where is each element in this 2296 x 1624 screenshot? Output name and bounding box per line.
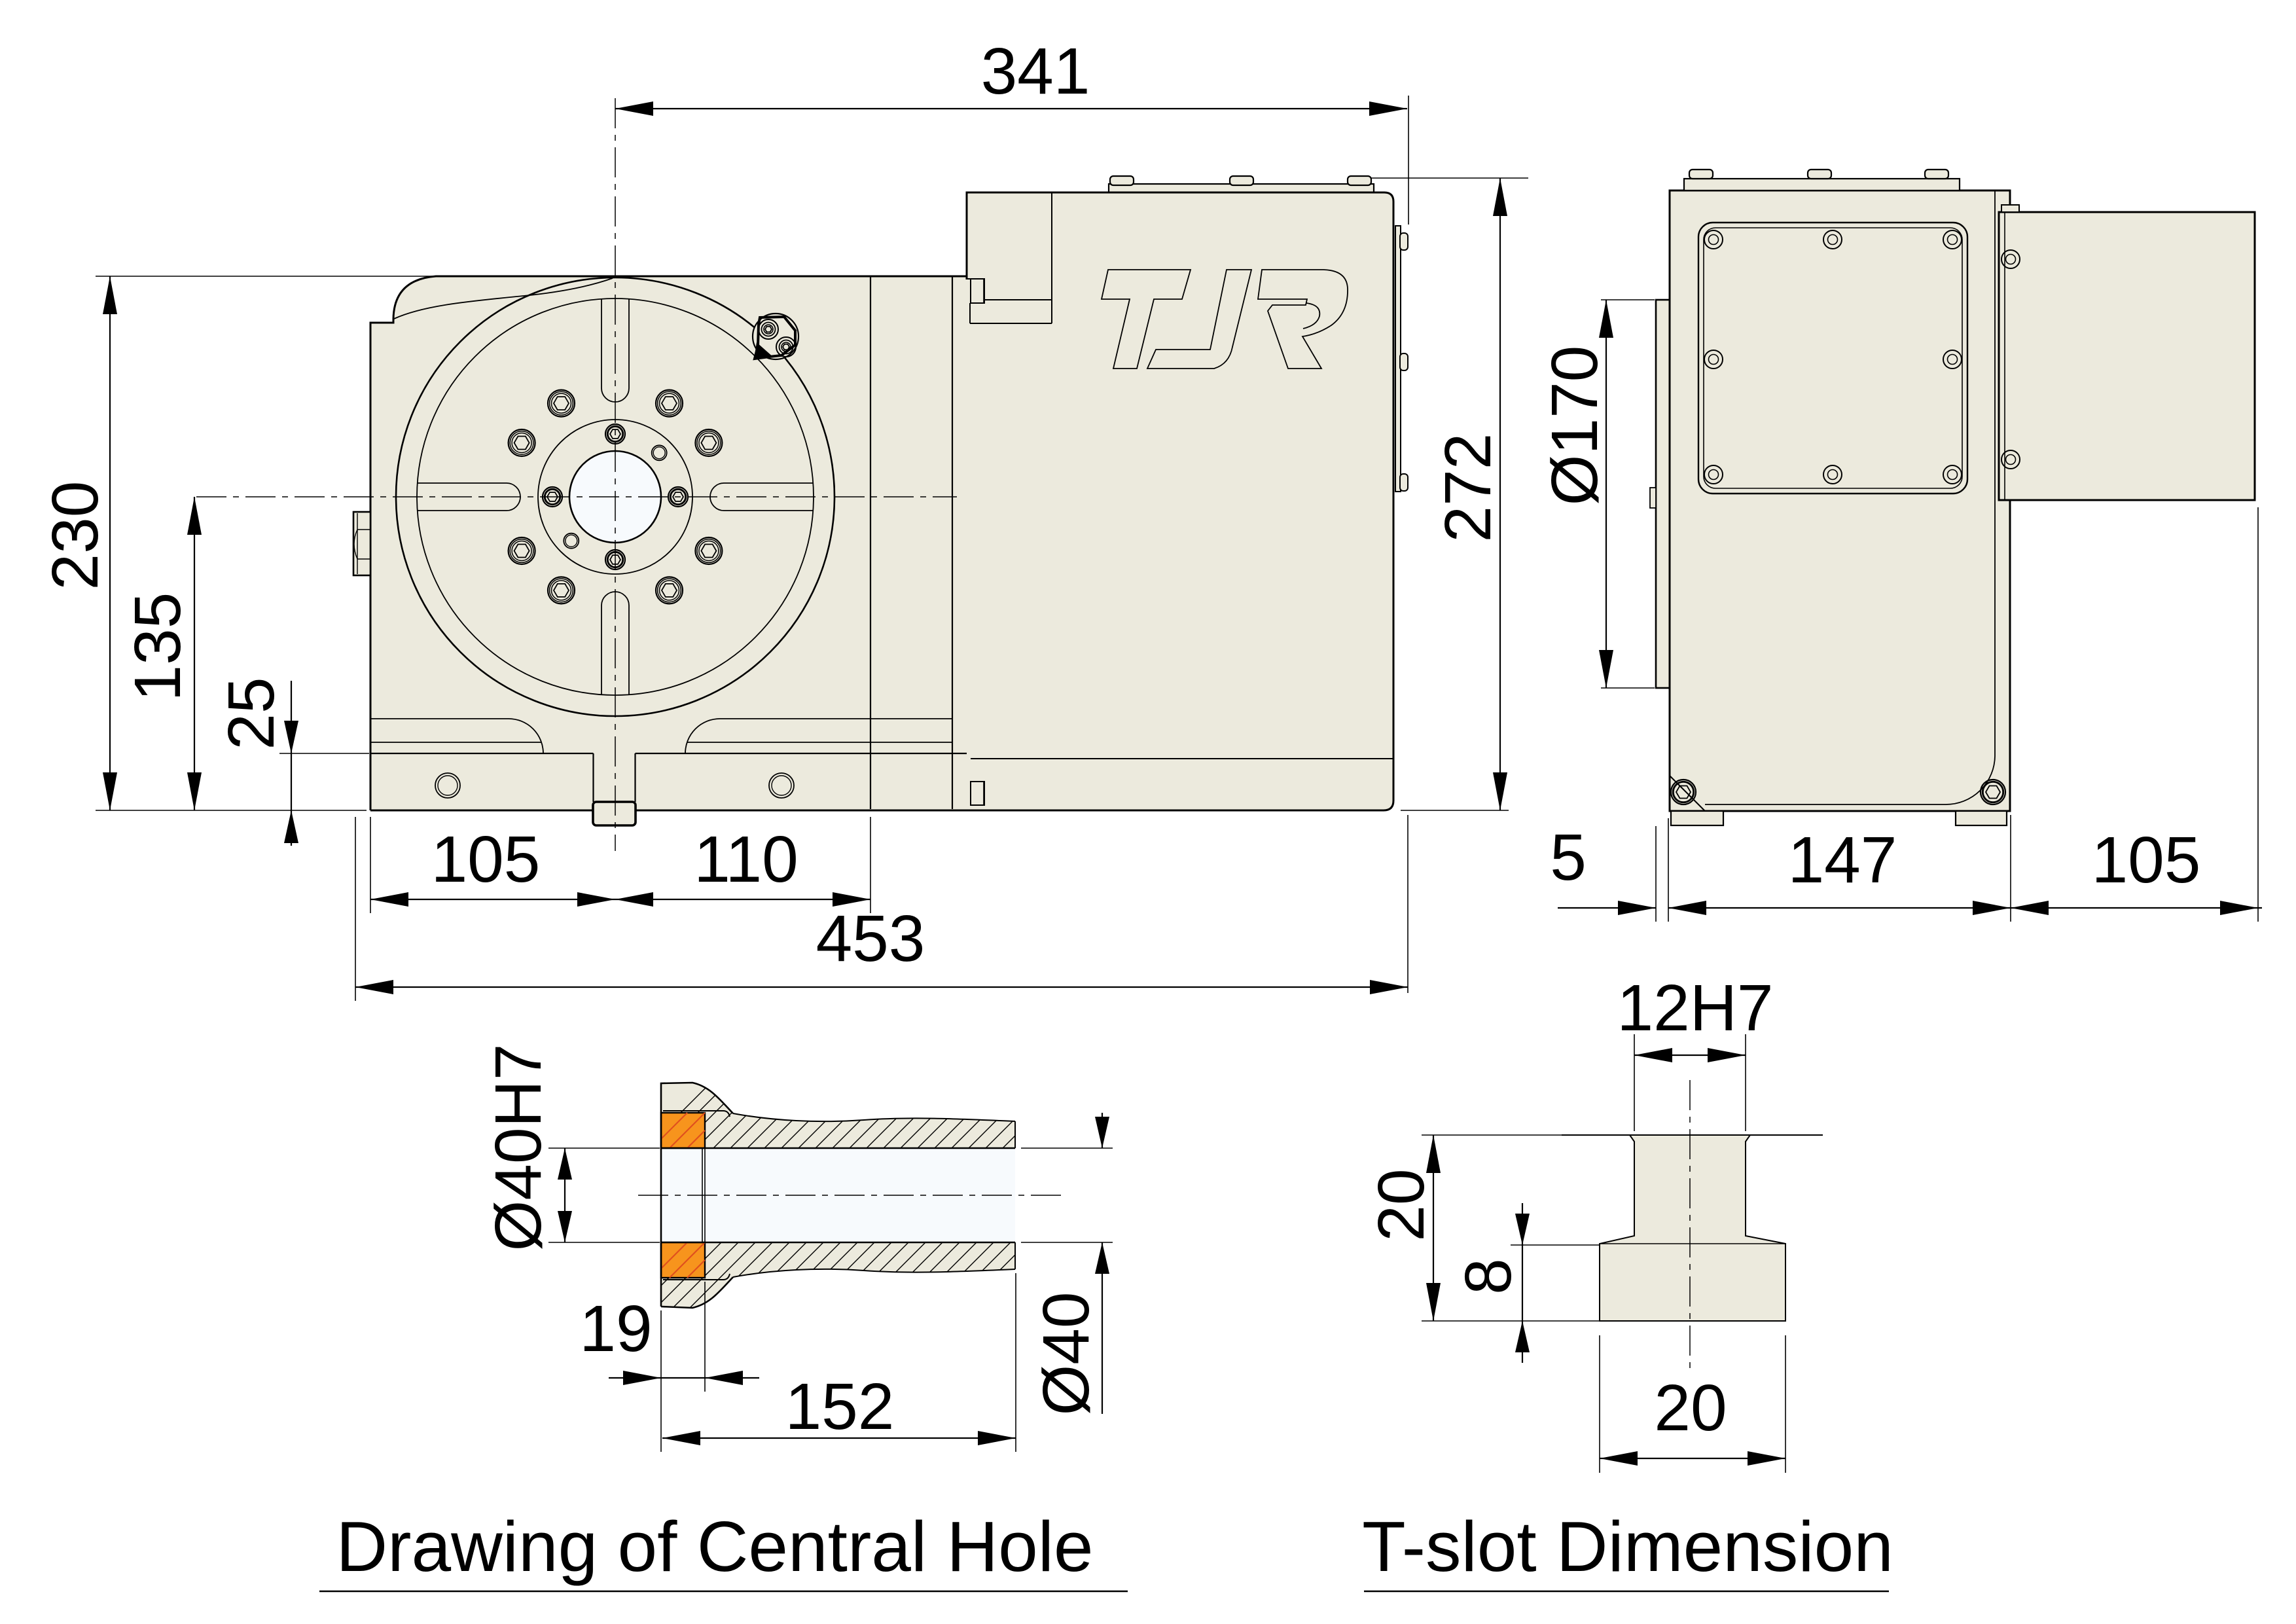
- svg-text:341: 341: [981, 35, 1090, 108]
- svg-text:105: 105: [431, 823, 541, 896]
- svg-text:230: 230: [39, 481, 112, 590]
- svg-text:453: 453: [816, 902, 925, 975]
- svg-text:135: 135: [121, 592, 194, 702]
- svg-text:12H7: 12H7: [1617, 971, 1773, 1045]
- svg-text:152: 152: [785, 1370, 895, 1443]
- svg-text:T-slot Dimension: T-slot Dimension: [1362, 1507, 1893, 1587]
- svg-text:19: 19: [579, 1292, 652, 1365]
- svg-text:Ø170: Ø170: [1538, 346, 1611, 506]
- svg-text:Ø40H7: Ø40H7: [482, 1044, 555, 1252]
- svg-text:25: 25: [215, 677, 288, 749]
- svg-text:5: 5: [1550, 821, 1587, 894]
- svg-text:8: 8: [1452, 1258, 1525, 1295]
- svg-text:20: 20: [1654, 1371, 1727, 1445]
- svg-text:Ø40: Ø40: [1030, 1291, 1103, 1415]
- svg-text:105: 105: [2092, 823, 2201, 897]
- svg-text:110: 110: [694, 823, 798, 896]
- svg-text:20: 20: [1365, 1168, 1438, 1241]
- svg-text:147: 147: [1788, 823, 1897, 897]
- svg-text:Drawing of Central Hole: Drawing of Central Hole: [336, 1507, 1093, 1587]
- svg-text:272: 272: [1431, 433, 1505, 543]
